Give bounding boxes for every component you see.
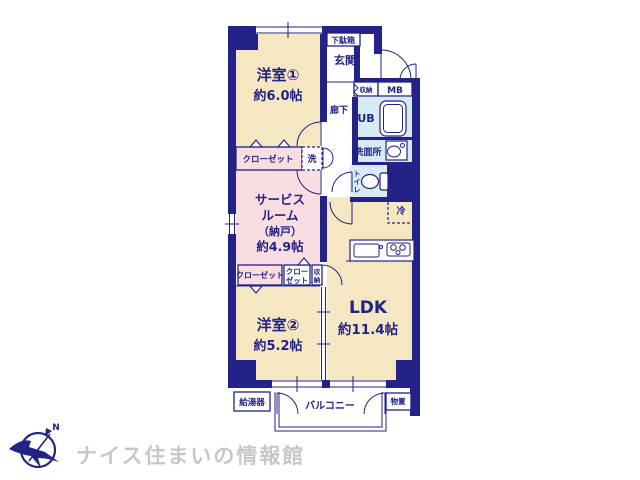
label-rouka: 廊下 xyxy=(330,104,348,116)
wall-entry-jamb xyxy=(374,26,382,54)
wall-east xyxy=(412,78,420,388)
wall-pillar-bottom-left xyxy=(228,360,256,388)
label-toilet-2: イ xyxy=(354,178,361,186)
wall-corridor-west-lower xyxy=(320,196,327,262)
label-balcony: バルコニー xyxy=(305,400,355,412)
label-service-1: サービス xyxy=(255,192,305,207)
label-service-3: （納戸） xyxy=(258,224,302,238)
label-shuno2-2: 納 xyxy=(314,275,321,284)
kitchen-counter xyxy=(346,240,414,261)
label-ldk-size: 約11.4帖 xyxy=(338,321,399,338)
label-closet3-1: クロー xyxy=(286,266,309,276)
vanity-sink-icon xyxy=(386,141,407,160)
label-toilet-1: ト xyxy=(354,170,361,178)
label-closet2: クローゼット xyxy=(236,270,284,280)
floor-plan-page: 洋室① 約6.0帖 クローゼット 洗 サービス ルーム （納戸） 約4.9帖 ク… xyxy=(0,0,640,480)
label-genkan: 玄関 xyxy=(334,53,356,67)
label-closet3-2: ゼット xyxy=(286,275,309,285)
label-yoshitsu1-size: 約6.0帖 xyxy=(253,88,302,104)
label-senmenjo: 洗面所 xyxy=(354,146,381,158)
toilet-icon xyxy=(362,173,389,190)
label-shed: 物置 xyxy=(391,396,406,406)
floor-plan-drawing: 洋室① 約6.0帖 クローゼット 洗 サービス ルーム （納戸） 約4.9帖 ク… xyxy=(0,0,640,480)
label-toilet-3: レ xyxy=(354,186,361,194)
label-shuno2-1: 収 xyxy=(314,267,321,276)
brand-name: ナイス住まいの情報館 xyxy=(76,444,305,468)
label-fridge: 冷 xyxy=(396,205,405,217)
wall-block-right-of-toilet xyxy=(387,165,412,198)
label-service-2: ルーム xyxy=(261,208,299,223)
label-ldk: LDK xyxy=(349,298,388,318)
label-yoshitsu2-size: 約5.2帖 xyxy=(253,338,302,354)
label-getabako: 下駄箱 xyxy=(331,35,355,45)
wall-pillar-bottom-right xyxy=(396,360,420,388)
label-yoshitsu1: 洋室① xyxy=(257,66,300,84)
label-water-heater: 給湯器 xyxy=(239,397,265,408)
room-ldk-floor xyxy=(327,197,412,380)
label-yoshitsu2: 洋室② xyxy=(257,316,300,334)
wall-south xyxy=(228,380,420,388)
compass-north-label: N xyxy=(52,423,60,433)
label-service-4: 約4.9帖 xyxy=(256,239,304,254)
wall-senmenjo-toilet-divider xyxy=(352,162,412,165)
wall-ub-senmenjo-divider xyxy=(352,137,412,140)
wall-west xyxy=(228,26,236,388)
label-closet1: クローゼット xyxy=(242,154,293,165)
wall-corridor-west-upper xyxy=(320,26,327,122)
bathtub-icon xyxy=(380,101,406,136)
label-shuno-hall: 収納 xyxy=(360,85,374,94)
label-mb: MB xyxy=(387,86,403,96)
label-ub: UB xyxy=(357,112,374,125)
label-washer: 洗 xyxy=(307,153,316,165)
